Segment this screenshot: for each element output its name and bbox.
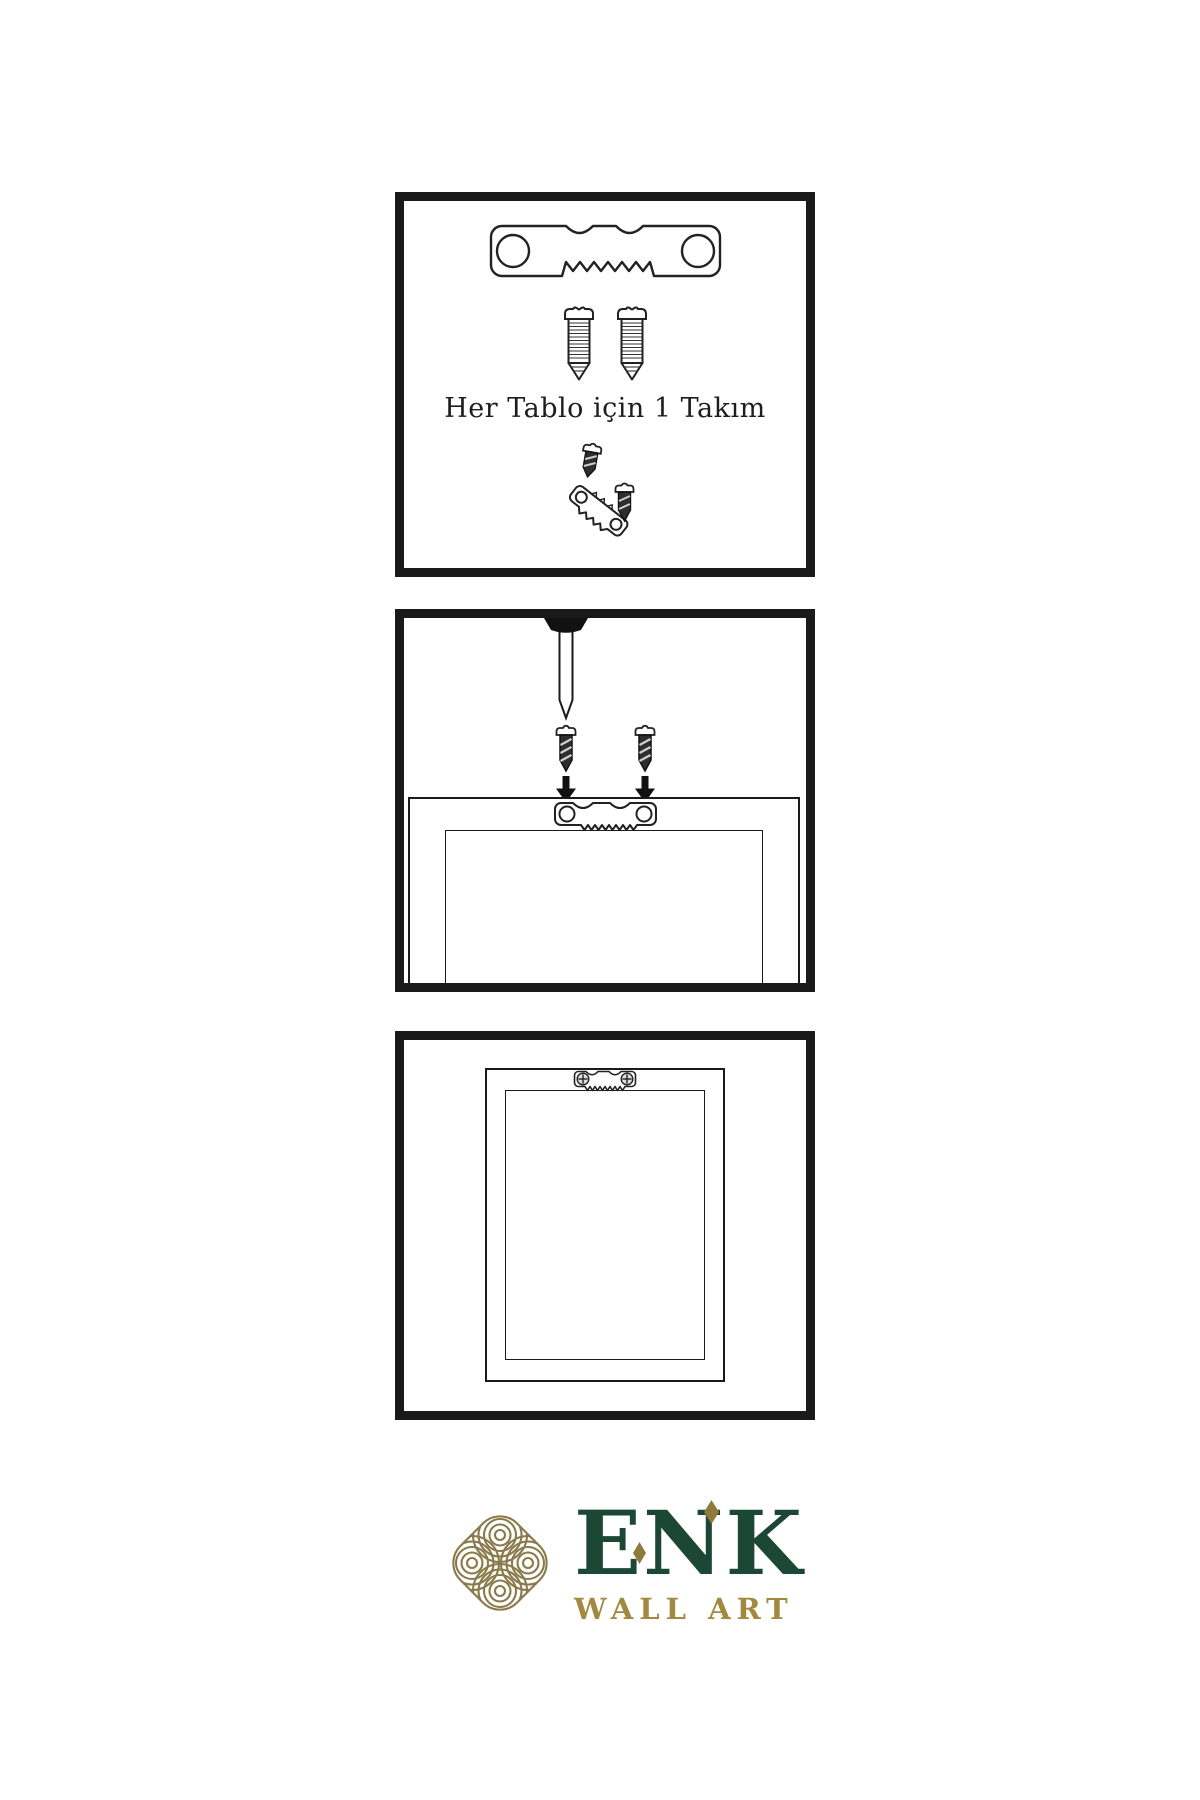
frame-inner-edge [445,830,763,992]
sawtooth-hanger-icon [553,801,658,831]
screw-icon [562,305,596,381]
step-panel-hardware-kit: Her Tablo için 1 Takım [395,192,815,577]
kit-screws-row [562,305,649,381]
brand-tagline: WALL ART [574,1592,804,1626]
mounting-screw-icon [554,724,578,774]
screw-icon [615,305,649,381]
brand-text-block: ENK WALL ART [574,1502,804,1626]
mounting-screw-icon [633,724,657,774]
step-panel-hung-frame [395,1031,815,1420]
kit-caption: Her Tablo için 1 Takım [444,393,766,424]
knot-logo-icon [438,1494,562,1632]
sawtooth-hanger-icon [488,223,723,279]
brand-name: ENK [574,1502,804,1585]
wall-nail-icon [544,618,588,724]
brand-logo: ENK WALL ART [438,1494,804,1632]
sawtooth-hanger-screwed-icon [573,1070,637,1094]
hanger-assembly-icon [555,442,655,542]
step-panel-nailing [395,609,815,992]
frame-inner-edge [505,1090,705,1360]
